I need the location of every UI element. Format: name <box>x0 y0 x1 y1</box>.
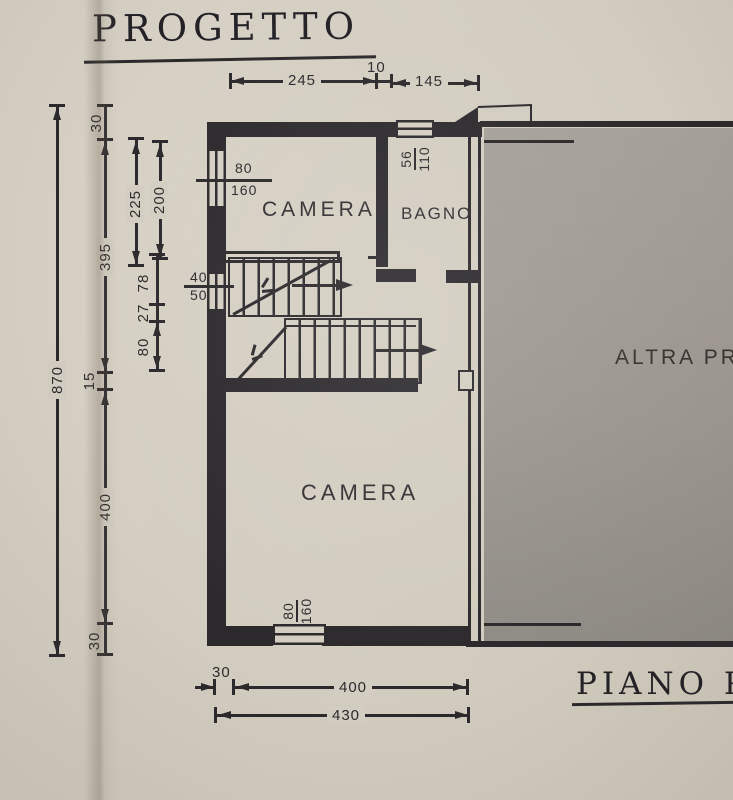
plan-title: PIANO P <box>576 666 733 702</box>
dim-left-400-arrow-down <box>101 609 109 622</box>
dim-bottom-tick-4 <box>214 707 217 723</box>
dim-left-30-bottom: 30 <box>85 622 103 660</box>
neighbor-inner-wall-bottom <box>484 623 581 626</box>
wall-bagno-west <box>376 137 388 267</box>
dim-left-395-arrow-down <box>101 358 109 371</box>
scanned-floor-plan-sheet: { "title": { "main": "PROGETTO", "bottom… <box>0 0 733 800</box>
neighbor-area <box>484 128 733 642</box>
dim-left-30-top: 30 <box>87 104 105 142</box>
window-bottom-size-den: 160 <box>298 598 314 624</box>
dim-left-15: 15 <box>80 362 98 400</box>
room-label-camera-lower: CAMERA <box>301 480 419 506</box>
wall-bottom-left-segment <box>207 626 273 646</box>
room-label-camera-upper: CAMERA <box>262 198 376 222</box>
dim-top-10: 10 <box>362 59 391 76</box>
dim-left-200: 200 <box>150 181 168 219</box>
wall-left-a <box>207 122 226 150</box>
wall-left-c <box>207 307 226 646</box>
dim-left-870: 870 <box>48 361 66 399</box>
dim-bottom-400-arrow-right <box>453 683 466 691</box>
dim-bottom-400-arrow-left <box>236 683 249 691</box>
stair-break-line-lower <box>237 326 287 380</box>
window-top-bagno-size-den: 110 <box>416 146 432 171</box>
dim-left-chain-line <box>104 105 107 655</box>
stair-arrow-upper-line <box>292 284 338 287</box>
window-top-bagno-size-num: 56 <box>398 148 416 170</box>
dim-bottom-30: 30 <box>207 664 236 681</box>
dim-left-870-arrow-up <box>53 107 61 120</box>
dim-left-200-arrow-up <box>156 144 164 157</box>
dim-left-870-tick-bottom <box>49 654 65 657</box>
wall-right-outer-line <box>478 128 481 642</box>
dim-top-tick-4 <box>477 75 480 91</box>
page-title-underline <box>84 55 376 64</box>
stair-flight-lower-nose-line <box>286 325 416 327</box>
dim-left-400-arrow-up <box>101 392 109 405</box>
dim-top-145: 145 <box>410 73 448 90</box>
wall-bagno-south-left <box>376 269 416 282</box>
dim-left-870-arrow-down <box>53 641 61 654</box>
dim-left-stair-tick-1 <box>149 253 165 256</box>
dim-left-80: 80 <box>134 328 152 366</box>
stair-arrow-upper-head <box>336 279 353 291</box>
datum-marker-tail-end <box>530 105 532 121</box>
dim-left-80-arrow-up <box>153 323 161 336</box>
window-left-stair <box>207 272 226 311</box>
wall-left-b <box>207 204 226 273</box>
dim-left-225: 225 <box>126 185 144 223</box>
stair-arrow-lower-line <box>376 349 422 352</box>
dim-left-chain-tick-3 <box>97 371 113 374</box>
neighbor-bottom-wall <box>466 641 733 647</box>
dim-top-245: 245 <box>283 72 321 89</box>
dim-top-245-arrow-right <box>363 77 376 85</box>
dim-left-395: 395 <box>96 238 114 276</box>
wall-top-left-segment <box>207 122 396 137</box>
dim-bottom-400: 400 <box>334 679 372 696</box>
room-label-bagno: BAGNO <box>401 204 472 224</box>
stair-break-chevron-lower-a <box>251 344 256 355</box>
dim-left-200-tick-top <box>152 140 168 143</box>
window-left-upper-size-den: 160 <box>231 183 257 198</box>
datum-triangle-marker <box>452 107 478 124</box>
neighbor-inner-wall-top <box>484 140 574 143</box>
dim-left-stair-tick-4 <box>149 369 165 372</box>
dim-left-400: 400 <box>96 488 114 526</box>
dim-top-145-arrow-right <box>464 79 477 87</box>
dim-bottom-tick-1 <box>213 679 216 695</box>
neighbor-top-wall <box>480 121 733 127</box>
datum-marker-tail <box>478 104 532 108</box>
dim-left-200-tick-bottom <box>152 257 168 260</box>
dim-top-145-arrow-left <box>393 79 406 87</box>
dim-top-245-arrow-left <box>231 77 244 85</box>
wall-bagno-west-jamb <box>368 256 377 259</box>
dim-bottom-tick-3 <box>466 679 469 695</box>
wall-right-pilaster <box>458 370 474 391</box>
window-left-stair-size-den: 50 <box>190 288 208 303</box>
stair-arrow-lower-head <box>420 344 437 356</box>
wall-top-right-segment <box>430 122 482 137</box>
dim-left-80-arrow-down <box>153 356 161 369</box>
dim-top-10-line <box>377 80 390 83</box>
page-title: PROGETTO <box>92 5 360 51</box>
window-bottom-size-num: 80 <box>280 600 298 622</box>
dim-left-27: 27 <box>134 294 152 332</box>
window-top-bagno-size: 56 110 <box>398 139 432 179</box>
wall-bottom-right-segment <box>322 626 468 646</box>
dim-bottom-430: 430 <box>327 707 365 724</box>
dim-bottom-430-arrow-left <box>218 711 231 719</box>
dim-bottom-tick-5 <box>467 707 470 723</box>
wall-bagno-south-right <box>446 270 481 283</box>
neighbor-label: ALTRA PR <box>615 346 733 370</box>
window-top-bagno <box>396 120 434 138</box>
window-left-upper-size-num: 80 <box>235 161 253 176</box>
dim-left-chain-tick-4 <box>97 388 113 391</box>
dim-left-225-tick-top <box>128 137 144 140</box>
dim-left-225-arrow-up <box>132 141 140 154</box>
window-left-stair-size-num: 40 <box>190 270 208 285</box>
dim-left-395-arrow-up <box>101 142 109 155</box>
dim-left-225-arrow-down <box>132 251 140 264</box>
wall-camera-south-line1 <box>226 251 340 254</box>
dim-left-stair-line <box>156 254 159 371</box>
window-bottom-size: 80 160 <box>280 591 314 631</box>
